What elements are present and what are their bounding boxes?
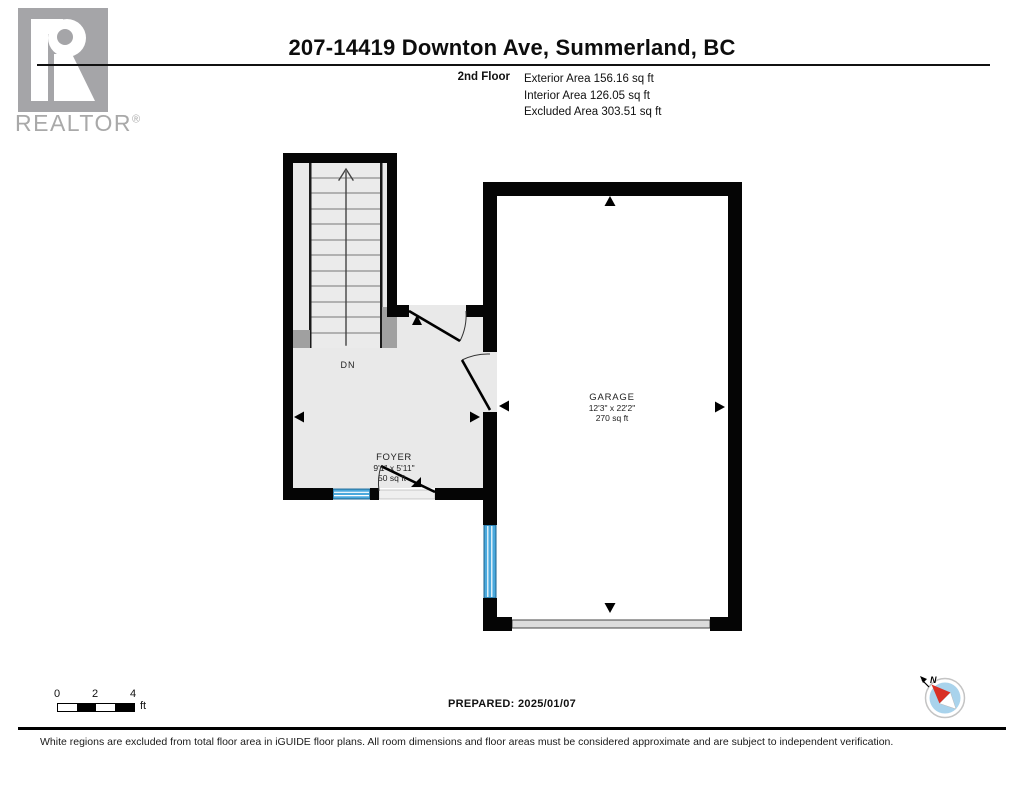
interior-area: Interior Area 126.05 sq ft <box>524 88 661 105</box>
prepared-date: PREPARED: 2025/01/07 <box>0 698 1024 710</box>
footer-divider <box>18 727 1006 730</box>
garage-name: GARAGE <box>589 392 634 403</box>
page-title: 207-14419 Downton Ave, Summerland, BC <box>0 35 1024 61</box>
compass-icon: N <box>917 670 975 728</box>
garage-window <box>484 525 496 598</box>
realtor-wordmark: REALTOR® <box>15 110 142 137</box>
foyer-area: 50 sq ft <box>378 473 407 483</box>
garage-area: 270 sq ft <box>596 413 629 423</box>
foyer-window <box>333 489 370 499</box>
exterior-area: Exterior Area 156.16 sq ft <box>524 71 661 88</box>
foyer-dimensions: 9'1" x 5'11" <box>373 463 414 473</box>
footer-disclaimer: White regions are excluded from total fl… <box>40 736 893 748</box>
garage-door <box>512 620 710 628</box>
excluded-area: Excluded Area 303.51 sq ft <box>524 104 661 121</box>
registered-symbol: ® <box>132 113 142 125</box>
foyer-name: FOYER <box>376 452 412 463</box>
garage-dimensions: 12'3" x 22'2" <box>589 403 636 413</box>
floor-plan-page: REALTOR® 207-14419 Downton Ave, Summerla… <box>0 0 1024 791</box>
compass-north-label: N <box>930 675 937 685</box>
title-divider <box>37 64 990 66</box>
stairs-dn-label: DN <box>341 360 356 370</box>
floor-plan-drawing: DN FOYER 9'1" x 5'11" 50 sq ft GARAGE 12… <box>260 140 760 650</box>
area-summary: Exterior Area 156.16 sq ft Interior Area… <box>524 71 661 121</box>
garage-label-group: GARAGE 12'3" x 22'2" 270 sq ft <box>589 392 636 423</box>
floor-label: 2nd Floor <box>380 71 510 83</box>
